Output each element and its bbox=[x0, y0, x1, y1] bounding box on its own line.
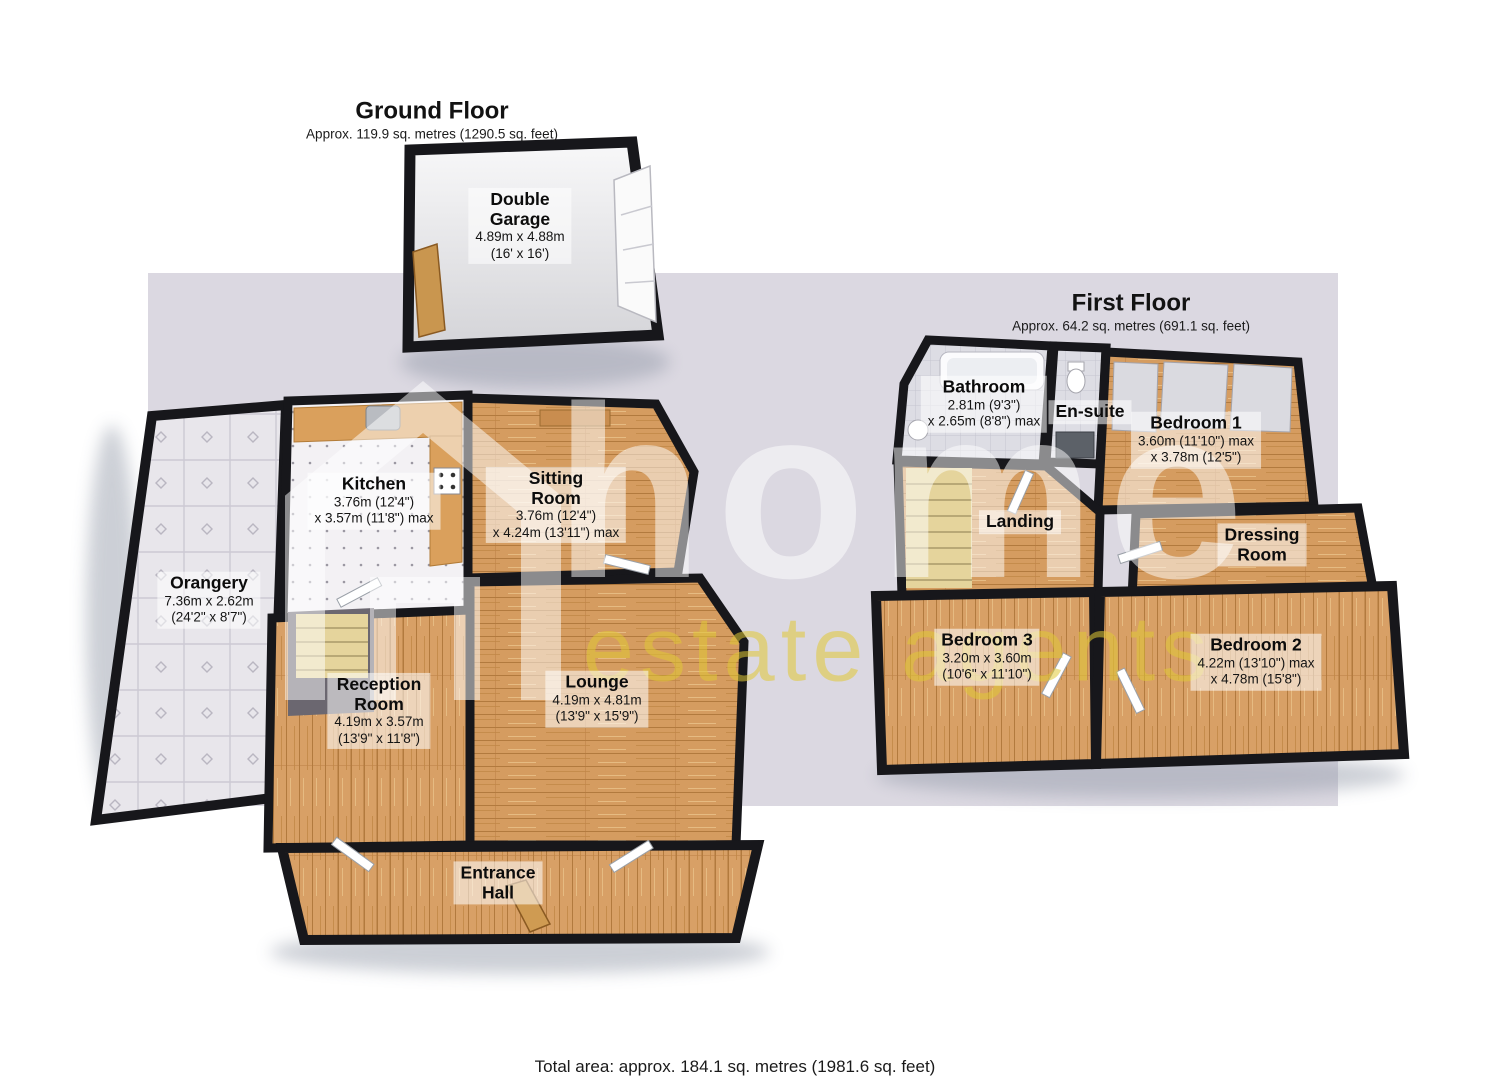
toilet-icon bbox=[1067, 362, 1085, 393]
room-label-bathroom: Bathroom 2.81m (9'3") x 2.65m (8'8") max bbox=[921, 376, 1047, 433]
room-dims: (13'9" x 11'8") bbox=[334, 731, 423, 747]
first-floor-title: First Floor bbox=[1012, 290, 1250, 316]
room-dims: 4.19m x 4.81m bbox=[552, 692, 641, 708]
floorplan-page: { "page": { "background": "#ffffff", "pl… bbox=[0, 0, 1485, 1080]
room-dims: 4.89m x 4.88m bbox=[475, 229, 564, 245]
room-label-ensuite: En-suite bbox=[1048, 400, 1131, 424]
room-name: Kitchen bbox=[315, 475, 434, 495]
room-dims: 3.76m (12'4") bbox=[315, 494, 434, 510]
room-dims: 2.81m (9'3") bbox=[928, 397, 1040, 413]
room-dims: (10'6" x 11'10") bbox=[941, 667, 1032, 683]
room-label-double-garage: Double Garage 4.89m x 4.88m (16' x 16') bbox=[468, 188, 571, 264]
room-dims: 7.36m x 2.62m bbox=[164, 593, 253, 609]
room-label-reception-room: Reception Room 4.19m x 3.57m (13'9" x 11… bbox=[327, 673, 430, 749]
staircase-first-floor bbox=[906, 468, 972, 588]
room-name: Sitting Room bbox=[493, 469, 619, 508]
total-area-label: Total area: approx. 184.1 sq. metres (19… bbox=[535, 1057, 936, 1077]
first-floor-area: Approx. 64.2 sq. metres (691.1 sq. feet) bbox=[1012, 319, 1250, 334]
first-floor-header: First Floor Approx. 64.2 sq. metres (691… bbox=[1012, 290, 1250, 333]
room-dims: 4.19m x 3.57m bbox=[334, 714, 423, 730]
room-dims: 3.20m x 3.60m bbox=[941, 650, 1032, 666]
room-name: Entrance Hall bbox=[461, 863, 536, 902]
room-dims: (24'2" x 8'7") bbox=[164, 610, 253, 626]
room-dims: 3.60m (11'10") max bbox=[1138, 433, 1254, 449]
room-label-sitting-room: Sitting Room 3.76m (12'4") x 4.24m (13'1… bbox=[486, 467, 626, 543]
room-label-dressing-room: Dressing Room bbox=[1218, 523, 1307, 566]
room-dims: 4.22m (13'10") max bbox=[1198, 655, 1315, 671]
room-dims: x 3.57m (11'8") max bbox=[315, 511, 434, 527]
room-label-bedroom3: Bedroom 3 3.20m x 3.60m (10'6" x 11'10") bbox=[934, 629, 1039, 686]
ground-floor-header: Ground Floor Approx. 119.9 sq. metres (1… bbox=[306, 98, 558, 141]
ground-floor-title: Ground Floor bbox=[306, 98, 558, 124]
room-dims: (13'9" x 15'9") bbox=[552, 709, 641, 725]
room-name: Orangery bbox=[164, 574, 253, 594]
room-name: Double Garage bbox=[475, 190, 564, 229]
room-dims: (16' x 16') bbox=[475, 246, 564, 262]
room-name: Bathroom bbox=[928, 378, 1040, 398]
room-dims: 3.76m (12'4") bbox=[493, 508, 619, 524]
room-name: Dressing Room bbox=[1225, 525, 1300, 564]
room-label-landing: Landing bbox=[979, 510, 1061, 534]
shower-icon bbox=[1056, 432, 1094, 458]
room-label-orangery: Orangery 7.36m x 2.62m (24'2" x 8'7") bbox=[157, 572, 260, 629]
room-label-bedroom2: Bedroom 2 4.22m (13'10") max x 4.78m (15… bbox=[1191, 634, 1322, 691]
room-name: Lounge bbox=[552, 673, 641, 693]
room-label-kitchen: Kitchen 3.76m (12'4") x 3.57m (11'8") ma… bbox=[308, 473, 441, 530]
sideboard-icon bbox=[540, 410, 610, 426]
room-name: En-suite bbox=[1055, 402, 1124, 422]
garage-door-icon bbox=[614, 166, 656, 322]
room-name: Bedroom 2 bbox=[1198, 636, 1315, 656]
room-label-bedroom1: Bedroom 1 3.60m (11'10") max x 3.78m (12… bbox=[1131, 412, 1261, 469]
room-name: Reception Room bbox=[334, 675, 423, 714]
room-dims: x 3.78m (12'5") bbox=[1138, 450, 1254, 466]
sink-icon bbox=[366, 406, 400, 430]
room-dims: x 4.78m (15'8") bbox=[1198, 672, 1315, 688]
room-dims: x 2.65m (8'8") max bbox=[928, 414, 1040, 430]
room-dims: x 4.24m (13'11") max bbox=[493, 525, 619, 541]
ground-floor-area: Approx. 119.9 sq. metres (1290.5 sq. fee… bbox=[306, 127, 558, 142]
room-label-entrance-hall: Entrance Hall bbox=[454, 861, 543, 904]
room-name: Bedroom 1 bbox=[1138, 414, 1254, 434]
room-name: Landing bbox=[986, 512, 1054, 532]
room-name: Bedroom 3 bbox=[941, 631, 1032, 651]
room-label-lounge: Lounge 4.19m x 4.81m (13'9" x 15'9") bbox=[545, 671, 648, 728]
